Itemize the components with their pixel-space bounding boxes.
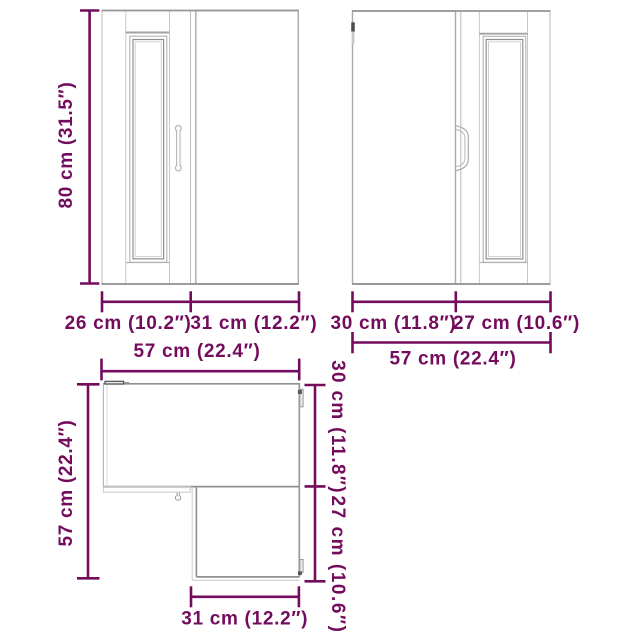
svg-text:57 cm (22.4″): 57 cm (22.4″) — [56, 420, 77, 547]
svg-text:31 cm (12.2″): 31 cm (12.2″) — [190, 313, 317, 334]
svg-text:31 cm (12.2″): 31 cm (12.2″) — [181, 608, 308, 629]
svg-text:30 cm (11.8″): 30 cm (11.8″) — [331, 313, 457, 334]
svg-text:27 cm (10.6″): 27 cm (10.6″) — [453, 313, 580, 334]
svg-text:30 cm (11.8″): 30 cm (11.8″) — [327, 360, 348, 494]
svg-text:80 cm (31.5″): 80 cm (31.5″) — [56, 82, 77, 209]
svg-text:27 cm (10.6″): 27 cm (10.6″) — [327, 495, 348, 633]
svg-text:57 cm (22.4″): 57 cm (22.4″) — [390, 348, 517, 369]
svg-text:26 cm (10.2″): 26 cm (10.2″) — [65, 313, 192, 334]
svg-text:57 cm (22.4″): 57 cm (22.4″) — [134, 341, 261, 362]
